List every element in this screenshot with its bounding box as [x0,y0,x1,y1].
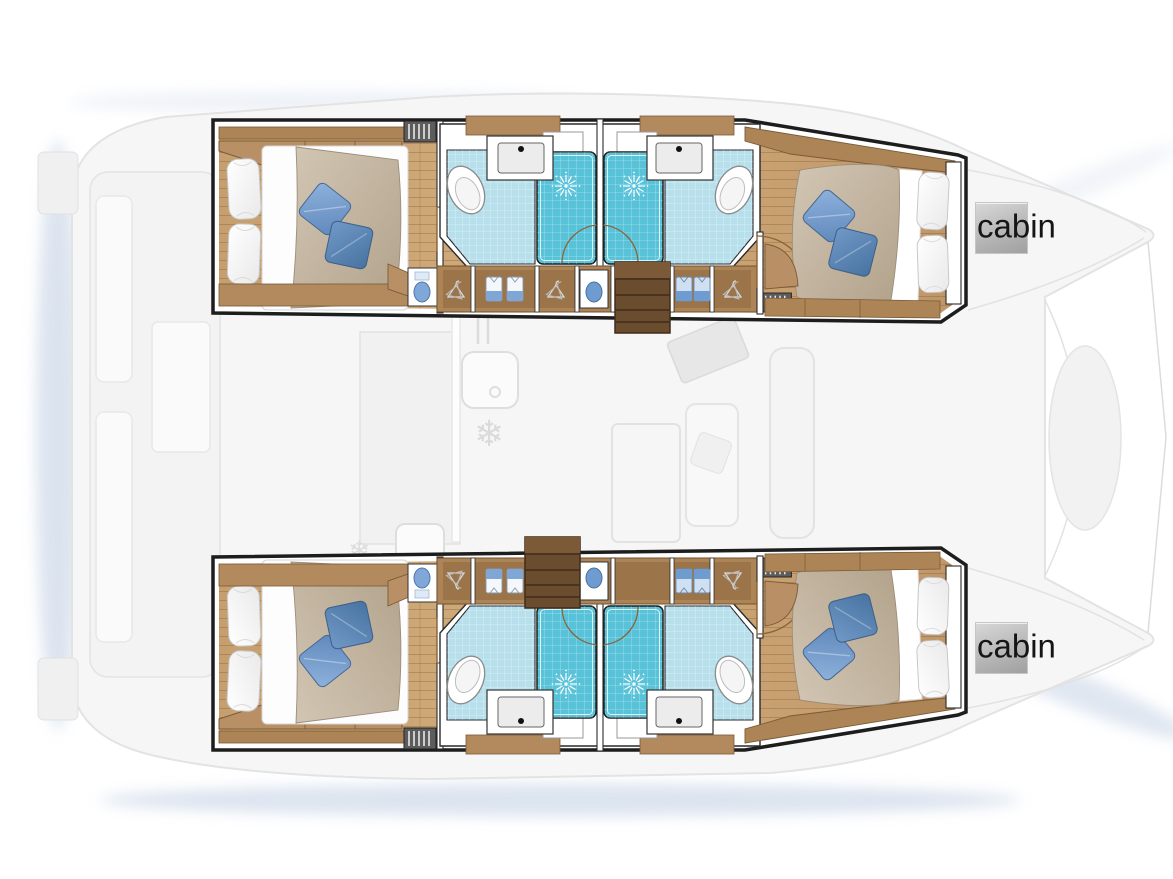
port-hull-stairs [615,262,670,333]
catamaran-floorplan: ❄ ❄ [0,0,1173,879]
starboard-hull-layout [213,548,966,754]
port-hull-layout [213,116,966,322]
chaise-ghost [770,348,814,538]
mast-post-ghost [452,300,460,542]
saloon-table-ghost [612,424,680,542]
starboard-hull-stairs [525,537,580,608]
galley-counter-ghost [360,332,460,544]
fridge-snowflake-icon: ❄ [474,414,504,455]
floorplan-canvas: ❄ ❄ ca [0,0,1173,879]
aft-cockpit-ghost [90,172,220,677]
galley-sink-ghost [462,352,518,408]
